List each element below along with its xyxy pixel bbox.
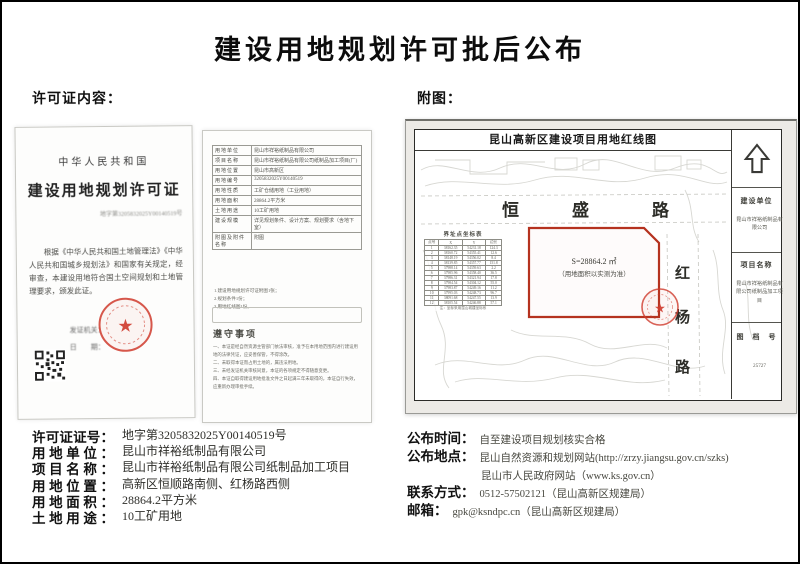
publish-place-row: 公布地点：昆山自然资源和规划网站(http://zrzy.jiangsu.gov… [407, 449, 729, 467]
titleblock-divider [732, 187, 781, 188]
road-char: 路 [675, 356, 690, 377]
coord-rows: 1 38162.35 54231.18 124.3 2 38160.72 543… [425, 246, 502, 306]
project-value: 昆山市祥裕纸制品有限公司纸制品加工项目 [732, 280, 787, 305]
publish-place-label: 公布地点： [407, 449, 475, 464]
road-char: 红 [675, 262, 690, 283]
permit-number-line: 地字第3205832025Y00140519号 [16, 208, 182, 219]
coord-table-footnote: 注：坐标采用昆山城建坐标系 [424, 306, 502, 311]
notice-items: 一、本证是经自然资源主管部门依法审核，准予在本用地范围内进行建设用地的法律凭证，… [213, 343, 361, 391]
titleblock-divider [732, 252, 781, 253]
detail-row: 土地用途：10工矿用地 [32, 507, 350, 523]
notice-item: 一、本证是经自然资源主管部门依法审核，准予在本用地范围内进行建设用地的法律凭证，… [213, 343, 361, 359]
publish-time-label: 公布时间： [407, 431, 475, 446]
detail-label: 土地用途： [32, 507, 114, 527]
row-value: 28864.2平方米 [252, 196, 362, 206]
detail-row: 用地面积：28864.2平方米 [32, 491, 350, 507]
figure-number-label: 图 档 号 [732, 332, 781, 342]
builder-label: 建设单位 [732, 196, 781, 206]
redline-map-photo: 昆山高新区建设项目用地红线图 恒 盛 路 红 杨 路 S=28864.2 ㎡ （… [405, 119, 797, 414]
map-section-label: 附图： [417, 88, 462, 108]
row-label: 项目名称 [213, 156, 252, 166]
email-label: 邮箱： [407, 503, 448, 518]
row-value: 昆山市祥裕纸制品有限公司纸制品加工项目(厂) [252, 156, 362, 166]
table-row: 用地性质 工矿仓储用地（工业用地） [213, 186, 362, 196]
table-row: 用地面积 28864.2平方米 [213, 196, 362, 206]
north-arrow-icon [743, 142, 771, 176]
contact-value: 0512-57502121（昆山高新区规建局） [480, 489, 652, 500]
row-label: 土地用途 [213, 206, 252, 216]
publish-place-value-2: 昆山市人民政府网站（www.ks.gov.cn） [481, 471, 661, 482]
detail-row: 用地位置：高新区恒顺路南侧、红杨路西侧 [32, 475, 350, 491]
row-value: 工矿仓储用地（工业用地） [252, 186, 362, 196]
detail-row: 项目名称：昆山市祥裕纸制品有限公司纸制品加工项目 [32, 458, 350, 474]
row-label: 用地位置 [213, 166, 252, 176]
notice-item: 二、未取得本证而占用土地的，属违法用地。 [213, 359, 361, 367]
table-row: 用地位置 昆山市高新区 [213, 166, 362, 176]
permit-certificate-page1: 中华人民共和国 建设用地规划许可证 地字第3205832025Y00140519… [14, 125, 195, 420]
row-label: 用地性质 [213, 186, 252, 196]
row-value: 昆山市高新区 [252, 166, 362, 176]
attachment-line: 2.规划条件1份； [214, 295, 279, 303]
road-char: 杨 [675, 306, 690, 327]
figure-number-value: 25727 [732, 362, 787, 370]
permit-section-label: 许可证内容： [32, 88, 122, 108]
redline-map-sheet: 昆山高新区建设项目用地红线图 恒 盛 路 红 杨 路 S=28864.2 ㎡ （… [414, 129, 782, 401]
contact-row: 联系方式：0512-57502121（昆山高新区规建局） [407, 485, 729, 503]
publish-place-row2: 昆山市人民政府网站（www.ks.gov.cn） [407, 467, 729, 485]
parcel-area-note: （用地面积以实测为准） [523, 268, 665, 278]
detail-value: 地字第3205832025Y00140519号 [122, 428, 287, 442]
official-seal-icon: ★ [95, 294, 156, 355]
detail-value: 28864.2平方米 [122, 493, 197, 507]
table-row: 土地用途 10工矿用地 [213, 206, 362, 216]
builder-value: 昆山市祥裕纸制品有限公司 [732, 216, 787, 233]
coord-row: 12 38105.54 54246.88 57.1 [425, 301, 502, 306]
detail-value: 昆山市祥裕纸制品有限公司 [122, 444, 266, 458]
row-label: 用地编号 [213, 176, 252, 186]
permit-body-text: 根据《中华人民共和国土地管理法》《中华人民共和国城乡规划法》和国家有关规定，经审… [29, 244, 184, 298]
boundary-coordinate-table: 界址点坐标表 点号XY边长 1 38162.35 54231.18 124.3 [424, 230, 502, 311]
road-char: 路 [652, 196, 669, 221]
project-label: 项目名称 [732, 260, 781, 270]
empty-remark-box [212, 307, 362, 323]
email-row: 邮箱：gpk@ksndpc.cn（昆山高新区规建局） [407, 503, 729, 521]
row-value: 10工矿用地 [252, 206, 362, 216]
road-char: 恒 [502, 196, 519, 221]
parcel-area-label: S=28864.2 ㎡ [531, 256, 657, 267]
announcement-page: 建设用地规划许可批后公布 许可证内容： 附图： 中华人民共和国 建设用地规划许可… [0, 0, 800, 564]
detail-value: 10工矿用地 [122, 509, 182, 523]
detail-row: 用地单位：昆山市祥裕纸制品有限公司 [32, 442, 350, 458]
permit-country: 中华人民共和国 [16, 152, 192, 169]
table-row: 用地单位 昆山市祥裕纸制品有限公司 [213, 146, 362, 156]
notice-item: 三、未经发证机关审核同意，本证的各项规定不得随意变更。 [213, 367, 361, 375]
titleblock-divider [732, 322, 781, 323]
publish-time-value: 自至建设项目规划核实合格 [480, 435, 606, 446]
permit-title: 建设用地规划许可证 [16, 178, 192, 201]
table-row: 附图及附件名称 附图 [213, 233, 362, 250]
table-row: 用地编号 3205832025Y00140519 [213, 176, 362, 186]
row-label: 用地单位 [213, 146, 252, 156]
table-row: 项目名称 昆山市祥裕纸制品有限公司纸制品加工项目(厂) [213, 156, 362, 166]
table-row: 建设规模 详见规划条件、设计方案、规划要求（含地下室） [213, 216, 362, 233]
row-value: 详见规划条件、设计方案、规划要求（含地下室） [252, 216, 362, 233]
detail-value: 昆山市祥裕纸制品有限公司纸制品加工项目 [122, 460, 350, 474]
page-title: 建设用地规划许可批后公布 [2, 28, 798, 67]
publication-info: 公布时间：自至建设项目规划核实合格 公布地点：昆山自然资源和规划网站(http:… [407, 431, 729, 521]
detail-value: 高新区恒顺路南侧、红杨路西侧 [122, 477, 290, 491]
row-value: 3205832025Y00140519 [252, 176, 362, 186]
row-value: 附图 [252, 233, 362, 250]
permit-details: 许可证证号：地字第3205832025Y00140519号 用地单位：昆山市祥裕… [32, 426, 350, 523]
row-label: 用地面积 [213, 196, 252, 206]
permit-certificate-page2: 用地单位 昆山市祥裕纸制品有限公司 项目名称 昆山市祥裕纸制品有限公司纸制品加工… [202, 130, 372, 423]
email-value: gpk@ksndpc.cn（昆山高新区规建局） [453, 507, 626, 518]
coord-table-title: 界址点坐标表 [424, 230, 502, 238]
notice-title: 遵守事项 [213, 327, 257, 340]
qr-code-icon [34, 349, 66, 381]
map-titleblock: 建设单位 昆山市祥裕纸制品有限公司 项目名称 昆山市祥裕纸制品有限公司纸制品加工… [731, 130, 781, 399]
contact-label: 联系方式： [407, 485, 475, 500]
publish-place-value-1: 昆山自然资源和规划网站(http://zrzy.jiangsu.gov.cn/s… [480, 453, 729, 464]
map-title: 昆山高新区建设项目用地红线图 [415, 130, 731, 151]
row-label: 附图及附件名称 [213, 233, 252, 250]
row-label: 建设规模 [213, 216, 252, 233]
notice-item: 四、本证自取得建设用地批准文件之日起满三年未取得的，本证自行失效，应重新办理审批… [213, 375, 361, 391]
road-char: 盛 [572, 196, 589, 221]
permit-info-table: 用地单位 昆山市祥裕纸制品有限公司 项目名称 昆山市祥裕纸制品有限公司纸制品加工… [212, 145, 362, 250]
publish-time-row: 公布时间：自至建设项目规划核实合格 [407, 431, 729, 449]
detail-row: 许可证证号：地字第3205832025Y00140519号 [32, 426, 350, 442]
row-value: 昆山市祥裕纸制品有限公司 [252, 146, 362, 156]
attachment-line: 1.建设用地规划许可证附图1张； [214, 287, 279, 295]
svg-text:★: ★ [117, 316, 133, 336]
